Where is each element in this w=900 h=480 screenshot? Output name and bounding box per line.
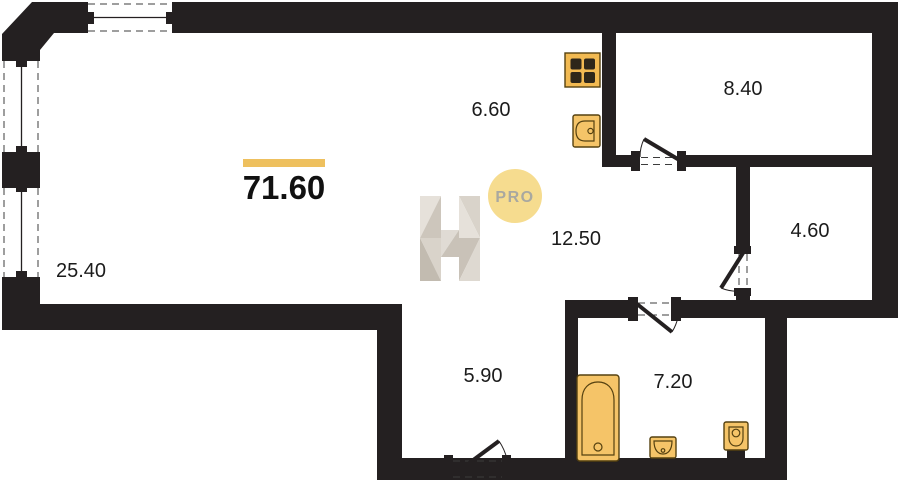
wall-chamfer-top-left [2, 2, 88, 61]
room-area-hall: 12.50 [551, 228, 601, 250]
bathtub-icon [577, 375, 619, 461]
kitchen-sink-icon [573, 115, 600, 147]
wall-left-corner [2, 277, 40, 330]
room-area-kitchen: 6.60 [472, 99, 511, 121]
wall-corridor-left [377, 330, 402, 480]
wall-room460-left-a [736, 167, 750, 252]
wall-band-left [565, 300, 632, 318]
room-area-right: 4.60 [791, 220, 830, 242]
floor-plan: PRO 71.60 25.40 6.60 8.40 4.60 12.50 5.9… [0, 0, 900, 480]
toilet-icon [724, 422, 748, 460]
room-area-bathroom: 7.20 [654, 371, 693, 393]
wall-kitchen-divider [602, 2, 616, 167]
wall-bathroom-right [765, 318, 787, 458]
pro-badge-label: PRO [495, 189, 534, 206]
watermark-h-icon [420, 196, 480, 281]
door-bathroom [628, 297, 681, 332]
wall-left-block [2, 152, 40, 188]
pro-badge: PRO [488, 169, 542, 223]
total-area-accent-bar [243, 159, 325, 167]
room-area-living: 25.40 [56, 260, 106, 282]
fixtures [565, 53, 748, 461]
wall-top [172, 2, 898, 33]
floor-plan-canvas: PRO 71.60 25.40 6.60 8.40 4.60 12.50 5.9… [0, 0, 900, 480]
wall-room840-bottom-b [682, 155, 872, 167]
door-room460 [721, 246, 751, 296]
window-left-lower [4, 184, 38, 279]
stove-icon [565, 53, 600, 87]
door-room840 [631, 139, 686, 171]
room-area-corridor: 5.90 [464, 365, 503, 387]
wall-living-bottom [38, 304, 402, 330]
window-left-upper [4, 59, 38, 154]
total-area-label: 71.60 [243, 169, 326, 206]
washbasin-icon [650, 437, 676, 460]
watermark-logo: PRO [420, 169, 542, 281]
window-top [85, 4, 175, 31]
wall-band-right [678, 300, 898, 318]
wall-right [872, 2, 898, 318]
room-area-top-right: 8.40 [724, 78, 763, 100]
wall-bathroom-left [565, 318, 578, 458]
